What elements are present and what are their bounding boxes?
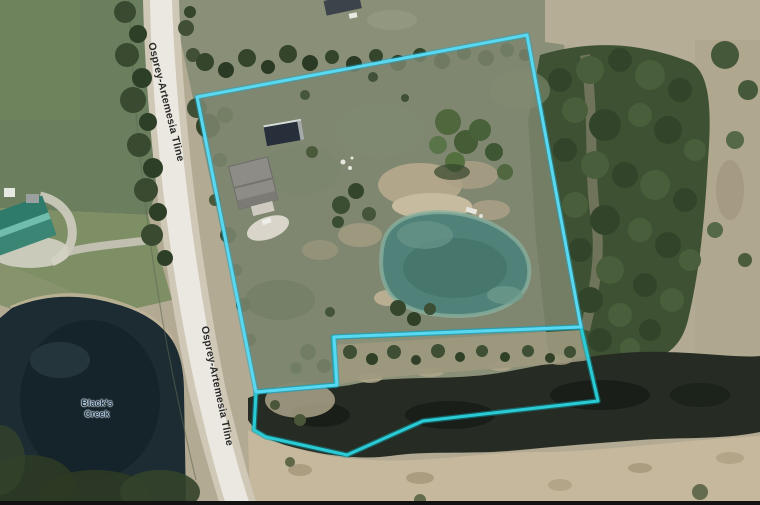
image-bottom-border	[0, 501, 760, 505]
map-canvas[interactable]: Osprey-Artemesia Tline Osprey-Artemesia …	[0, 0, 760, 505]
aerial-imagery	[0, 0, 760, 505]
